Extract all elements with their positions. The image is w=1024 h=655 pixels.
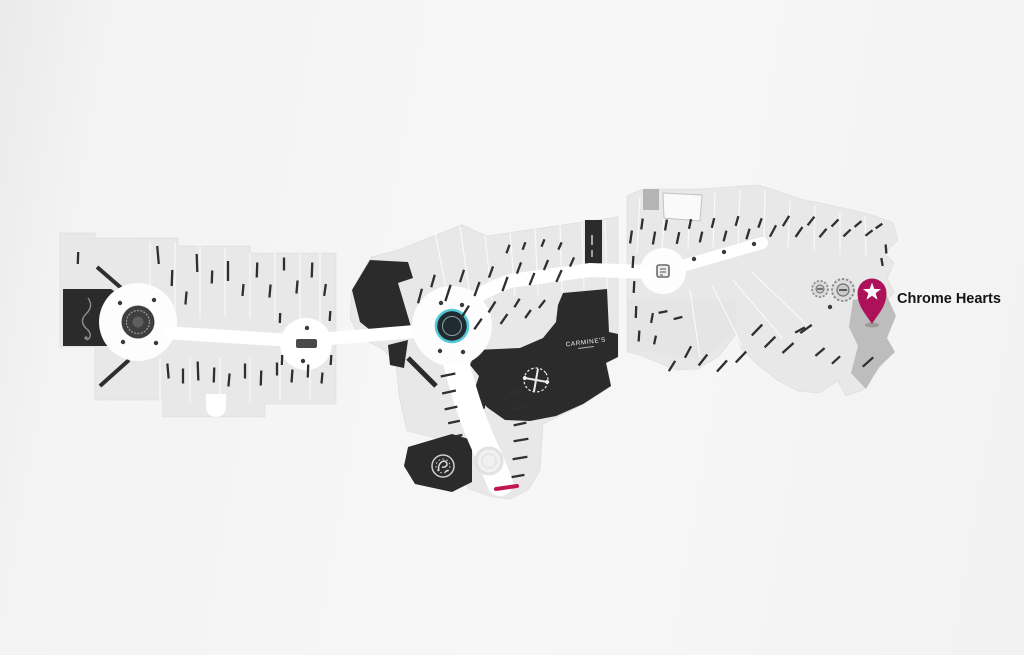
store-label-text [185,292,186,305]
walkway-marker-dot [305,326,309,330]
walkway-marker-dot [461,350,465,354]
walkway-marker-dot [828,305,832,309]
store-label-text [257,263,258,278]
walkway-marker-dot [118,301,122,305]
store-label-text [172,270,173,286]
anchor-logo-dot [84,336,87,339]
mall-map[interactable]: CARMINE'S [0,0,1024,655]
store-label-text [228,374,229,387]
store-label-text [167,364,168,379]
store-label-text [197,254,198,272]
store-label-text [639,331,640,342]
store-label-text [269,285,270,298]
walkway-marker-dot [438,349,442,353]
store-bar-label [591,250,593,257]
walkway-marker-dot [722,250,726,254]
walkway-marker-dot [152,298,156,302]
store-label-text [736,352,746,363]
store-label-text [198,362,199,381]
walkway-marker-dot [154,341,158,345]
store-badge-icon[interactable] [832,279,854,301]
store-label-text [312,263,313,278]
store-label-text [717,360,727,371]
store-badge-icon[interactable] [812,281,828,297]
service-block [643,189,659,210]
walkway-marker-dot [692,257,696,261]
amenity-kiosk-icon [657,265,669,277]
selected-store-label: Chrome Hearts [897,291,1001,307]
walkway-marker-dot [301,359,305,363]
walkway-stub-end [206,397,226,417]
walkway-marker-dot [460,303,464,307]
walkway-marker-dot [752,242,756,246]
store-label-text [261,371,262,386]
right-wing [627,185,898,396]
store-label-text [886,245,887,254]
store-label-text [641,219,643,230]
store-bar-north[interactable] [585,220,602,270]
store-bar-label [591,235,593,245]
store-label-text [292,370,293,383]
escalator-icon [296,339,317,348]
court-west-logo-core [133,317,144,328]
restaurant-block-south[interactable] [404,434,472,492]
store-label-text [330,311,331,321]
store-label-text [881,258,882,266]
store-label-text [157,246,159,264]
store-label-text [331,355,332,365]
store-label-text [322,373,323,384]
store-label-text [242,284,243,296]
walkway-marker-dot [121,340,125,344]
store-label-text [214,368,215,383]
store-label-text [296,281,297,294]
walkway-marker-dot [439,301,443,305]
store-label-text [634,281,635,293]
mall-map-viewport[interactable]: CARMINE'S [0,0,1024,655]
outlined-store[interactable] [663,193,702,221]
store-label-text [633,256,634,268]
